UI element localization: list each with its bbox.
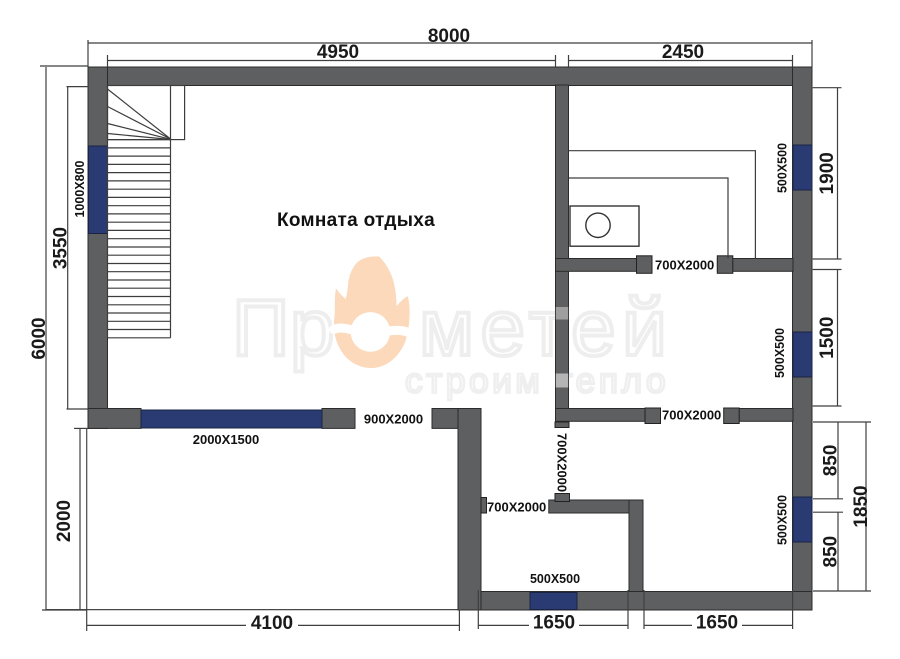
svg-text:500X500: 500X500 bbox=[530, 572, 580, 586]
svg-text:Комната отдыха: Комната отдыха bbox=[277, 210, 435, 231]
svg-text:700X2000: 700X2000 bbox=[655, 258, 714, 273]
svg-text:1900: 1900 bbox=[817, 152, 838, 194]
svg-text:2000X1500: 2000X1500 bbox=[193, 432, 260, 447]
svg-text:700X2000: 700X2000 bbox=[487, 500, 546, 515]
svg-text:500X500: 500X500 bbox=[773, 328, 787, 378]
svg-text:3550: 3550 bbox=[51, 227, 72, 269]
svg-text:2450: 2450 bbox=[662, 42, 704, 63]
svg-text:8000: 8000 bbox=[428, 26, 470, 47]
svg-text:2000: 2000 bbox=[54, 500, 75, 542]
svg-text:метей: метей bbox=[419, 283, 673, 372]
svg-text:500X500: 500X500 bbox=[776, 143, 790, 193]
svg-text:1000X800: 1000X800 bbox=[73, 160, 87, 217]
svg-text:900X2000: 900X2000 bbox=[364, 412, 423, 427]
svg-text:700X2000: 700X2000 bbox=[555, 433, 570, 492]
svg-text:6000: 6000 bbox=[29, 317, 50, 359]
svg-text:1850: 1850 bbox=[851, 485, 872, 527]
svg-text:1500: 1500 bbox=[817, 317, 838, 359]
svg-text:1650: 1650 bbox=[533, 613, 575, 634]
svg-text:1650: 1650 bbox=[696, 613, 738, 634]
svg-text:4950: 4950 bbox=[317, 42, 359, 63]
svg-text:строим тепло: строим тепло bbox=[405, 361, 669, 401]
svg-text:Пр: Пр bbox=[232, 283, 335, 372]
svg-text:4100: 4100 bbox=[251, 613, 293, 634]
svg-text:500X500: 500X500 bbox=[776, 495, 790, 545]
svg-text:850: 850 bbox=[821, 536, 842, 568]
svg-text:700X2000: 700X2000 bbox=[662, 408, 721, 423]
svg-text:850: 850 bbox=[821, 445, 842, 477]
